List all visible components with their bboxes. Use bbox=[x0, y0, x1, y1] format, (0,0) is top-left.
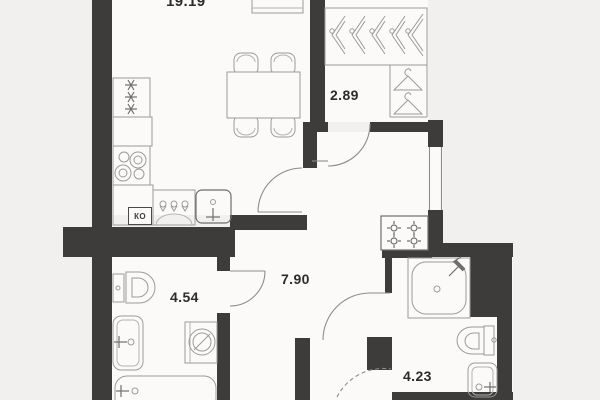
room-label-living: 19.19 bbox=[166, 0, 206, 10]
door-swing-arc bbox=[230, 124, 442, 397]
kitchen-unit-ko: КО bbox=[128, 207, 152, 225]
kitchen-counter bbox=[113, 117, 152, 146]
cabinet bbox=[252, 0, 303, 13]
floor-plan: 19.19 2.89 7.90 4.54 4.23 КО bbox=[0, 0, 600, 400]
hanger-front-icon bbox=[394, 69, 422, 114]
kitchen-sink-icon bbox=[196, 190, 231, 223]
stove-burners-icon bbox=[113, 146, 150, 185]
hook-icon bbox=[160, 201, 188, 211]
room-label-bathroom-left: 4.54 bbox=[170, 289, 199, 305]
room-label-hallway: 7.90 bbox=[281, 271, 310, 287]
fixtures-layer bbox=[0, 0, 600, 400]
bathtub-icon bbox=[115, 376, 216, 400]
hanger-side-icon bbox=[330, 14, 423, 56]
cooktop-star-icon bbox=[113, 78, 150, 117]
toilet-icon bbox=[457, 326, 496, 355]
dining-table bbox=[227, 72, 300, 118]
shower-icon bbox=[408, 257, 470, 318]
room-label-wardrobe: 2.89 bbox=[330, 87, 359, 103]
kitchen-unit-ko-label: КО bbox=[134, 212, 146, 221]
washbasin-icon bbox=[468, 363, 497, 397]
kitchen-counter bbox=[113, 185, 195, 225]
room-label-bathroom-right: 4.23 bbox=[403, 368, 432, 384]
gas-burner-icon bbox=[381, 216, 428, 250]
washbasin-icon bbox=[113, 316, 143, 370]
washing-machine-icon bbox=[185, 322, 217, 363]
toilet-icon bbox=[113, 272, 155, 303]
